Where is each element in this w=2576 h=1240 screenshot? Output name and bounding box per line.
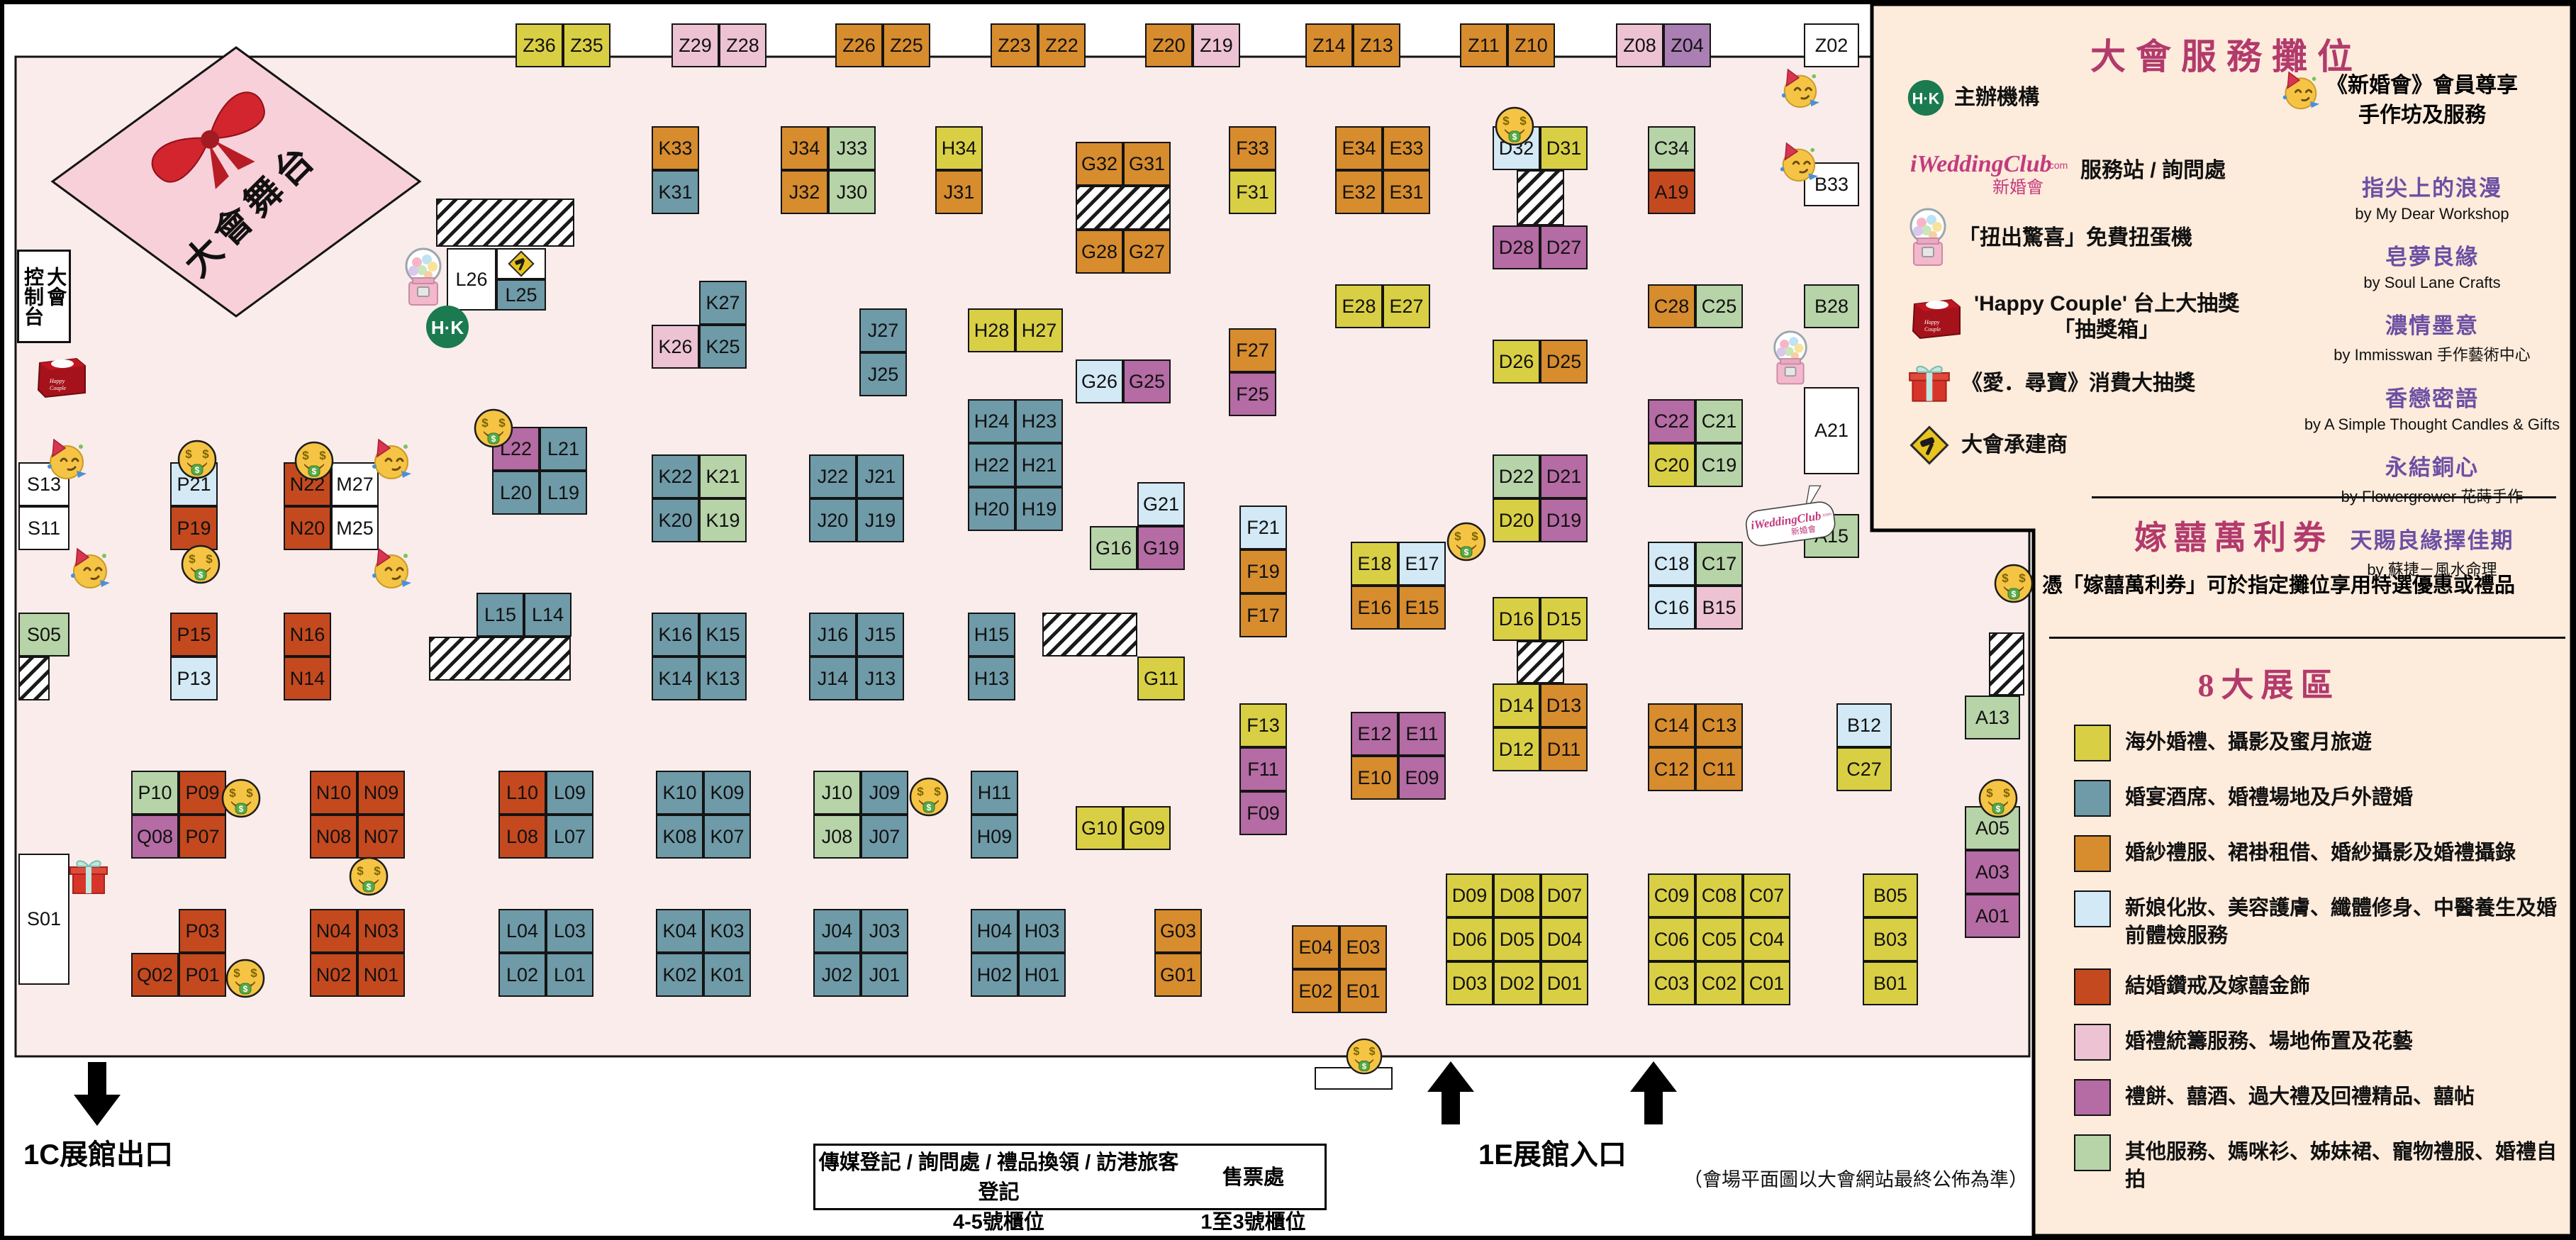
booth-label: E18	[1357, 554, 1391, 574]
svg-text:$: $	[491, 434, 496, 444]
booth-label: D27	[1546, 238, 1582, 257]
booth-B12: B12	[1836, 703, 1892, 747]
party-emoji-icon	[67, 547, 110, 590]
booth-D14: D14	[1493, 683, 1540, 727]
booth-label: H13	[974, 669, 1010, 688]
info-line1-left: 傳媒登記 / 詢問處 / 禮品換領 / 訪港旅客登記	[815, 1146, 1182, 1205]
workshop-by: by A Simple Thought Candles & Gifts	[2297, 415, 2567, 434]
svg-text:$: $	[1986, 786, 1993, 800]
booth-C21: C21	[1695, 399, 1743, 443]
zone-label: 新娘化妝、美容護膚、纖體修身、中醫養生及婚前體檢服務	[2125, 890, 2563, 950]
booth-label: N07	[364, 827, 399, 847]
hatched-area	[1989, 632, 2024, 696]
booth-N09: N09	[357, 771, 405, 815]
booth-label: K15	[706, 625, 740, 644]
booth-label: D03	[1452, 974, 1488, 993]
svg-text:$: $	[199, 570, 203, 580]
booth-label: E09	[1405, 769, 1439, 788]
booth-N10: N10	[310, 771, 357, 815]
booth-F17: F17	[1239, 593, 1287, 637]
money-emoji-icon: $ $ $	[1495, 106, 1534, 146]
hammer-icon	[505, 249, 537, 279]
booth-label: K03	[710, 922, 744, 941]
booth-label: Z29	[679, 36, 712, 55]
svg-text:$: $	[2012, 589, 2017, 599]
booth-label: P01	[185, 966, 219, 985]
booth-label: Z08	[1623, 36, 1656, 55]
booth-label: N02	[316, 966, 352, 985]
booth-label: N14	[290, 669, 325, 688]
booth-C03: C03	[1648, 961, 1695, 1005]
booth-label: H19	[1022, 500, 1057, 519]
booth-E17: E17	[1398, 542, 1446, 586]
booth-label: G01	[1160, 966, 1196, 985]
booth-H02: H02	[971, 953, 1018, 997]
workshop-by: by Immisswan 手作藝術中心	[2297, 342, 2567, 365]
booth-label: A21	[1814, 421, 1849, 440]
booth-C16: C16	[1648, 586, 1695, 630]
booth-label: B28	[1814, 297, 1849, 316]
booth-D08: D08	[1493, 873, 1541, 917]
booth-label: C12	[1654, 760, 1690, 779]
money-emoji-icon: $ $ $	[294, 441, 334, 481]
booth-C25: C25	[1695, 284, 1743, 328]
booth-F19: F19	[1239, 549, 1287, 593]
booth-label: L08	[506, 827, 538, 847]
gumball-icon	[1907, 204, 1948, 272]
booth-label: P19	[177, 519, 211, 538]
booth-label: K09	[710, 783, 744, 803]
booth-label: J02	[822, 966, 853, 985]
hammer-icon	[1907, 423, 1951, 467]
zone-color-swatch	[2074, 835, 2111, 872]
booth-label: D14	[1499, 696, 1534, 715]
booth-Z23: Z23	[991, 23, 1038, 67]
booth-Z10: Z10	[1507, 23, 1555, 67]
party-emoji-icon	[1778, 68, 1819, 109]
entrance-arrow-icon	[1427, 1061, 1677, 1124]
booth-label: Q02	[137, 966, 173, 985]
svg-text:$: $	[927, 803, 932, 812]
booth-D09: D09	[1446, 873, 1493, 917]
booth-label: G25	[1129, 372, 1165, 391]
booth-label: B01	[1873, 974, 1907, 993]
booth-label: J01	[869, 966, 901, 985]
booth-D31: D31	[1540, 126, 1588, 170]
booth-K22: K22	[652, 454, 699, 498]
booth-label: A03	[1975, 863, 2009, 882]
booth-label: E27	[1389, 297, 1423, 316]
workshop-name: 濃情墨意	[2297, 308, 2567, 340]
booth-label: M27	[336, 475, 374, 494]
booth-Z20: Z20	[1145, 23, 1193, 67]
booth-J08: J08	[813, 815, 861, 859]
booth-E04: E04	[1292, 925, 1339, 969]
booth-label: B12	[1847, 716, 1881, 735]
workshop-item: 濃情墨意 by Immisswan 手作藝術中心	[2297, 308, 2567, 365]
booth-C07: C07	[1743, 873, 1790, 917]
booth-label: Z36	[523, 36, 556, 55]
booth-label: N20	[290, 519, 325, 538]
booth-J19: J19	[857, 498, 904, 542]
booth-label: A01	[1975, 907, 2009, 926]
svg-text:$: $	[1512, 132, 1517, 142]
booth-F31: F31	[1229, 170, 1276, 214]
booth-J01: J01	[861, 953, 908, 997]
booth-label: C20	[1654, 456, 1690, 475]
svg-text:H·K: H·K	[431, 317, 464, 338]
svg-text:$: $	[1454, 530, 1461, 543]
money-emoji-icon: $ $ $	[1446, 522, 1486, 562]
booth-Q08: Q08	[131, 815, 179, 859]
money-emoji-icon: $ $ $	[474, 408, 513, 448]
booth-label: Z25	[890, 36, 923, 55]
booth-A21: A21	[1804, 387, 1859, 474]
booth-K13: K13	[699, 657, 747, 700]
booth-Z29: Z29	[671, 23, 719, 67]
booth-K07: K07	[703, 815, 751, 859]
svg-text:$: $	[319, 449, 326, 462]
booth-H11: H11	[971, 771, 1018, 815]
booth-label: J25	[868, 365, 899, 384]
booth-C22: C22	[1648, 399, 1695, 443]
booth-label: H28	[974, 321, 1010, 340]
booth-D01: D01	[1541, 961, 1588, 1005]
booth-H15: H15	[968, 613, 1015, 657]
booth-label: E11	[1405, 725, 1438, 744]
booth-Z28: Z28	[719, 23, 766, 67]
booth-label: H20	[974, 500, 1010, 519]
booth-label: L07	[554, 827, 586, 847]
booth-label: D28	[1499, 238, 1534, 257]
booth-label: L09	[554, 783, 586, 803]
booth-G27: G27	[1123, 230, 1171, 274]
booth-label: S05	[27, 625, 61, 644]
booth-J03: J03	[861, 909, 908, 953]
booth-label: E02	[1298, 982, 1332, 1001]
booth-F33: F33	[1229, 126, 1276, 170]
svg-text:Happy: Happy	[1924, 319, 1940, 325]
booth-label: P13	[177, 669, 211, 688]
booth-label: N09	[364, 783, 399, 803]
booth-label: Z19	[1200, 36, 1233, 55]
booth-J22: J22	[809, 454, 857, 498]
booth-D15: D15	[1540, 597, 1588, 641]
booth-label: G27	[1129, 242, 1165, 262]
booth-J32: J32	[781, 170, 828, 214]
booth-label: K04	[662, 922, 696, 941]
workshop-by: by Flowergrower 花蒔手作	[2297, 484, 2567, 507]
gumball-icon	[1771, 329, 1810, 389]
booth-F13: F13	[1239, 703, 1287, 747]
money-emoji-icon: $ $ $	[181, 544, 221, 584]
party-emoji-icon	[369, 438, 411, 481]
booth-D04: D04	[1541, 917, 1588, 961]
svg-text:$: $	[246, 786, 253, 800]
bubble-icon: iWeddingClub .com 新婚會	[1722, 484, 1860, 544]
svg-text:$: $	[1353, 1046, 1359, 1058]
zone-legend-item: 婚紗禮服、裙褂租借、婚紗攝影及婚禮攝錄	[2074, 835, 2563, 872]
booth-label: K26	[658, 337, 692, 357]
booth-label: K19	[706, 511, 740, 530]
service-label: 「扭出驚喜」免費扭蛋機	[1958, 225, 2192, 252]
booth-label: L14	[532, 605, 564, 625]
svg-text:$: $	[202, 447, 209, 461]
zone-color-swatch	[2074, 890, 2111, 927]
booth-label: D01	[1547, 974, 1583, 993]
booth-D13: D13	[1540, 683, 1588, 727]
booth-N14: N14	[284, 657, 331, 700]
booth-label: S11	[28, 519, 60, 538]
booth-P10: P10	[131, 771, 179, 815]
booth-label: Z20	[1152, 36, 1186, 55]
booth-C19: C19	[1695, 443, 1743, 487]
service-label: 《愛．尋寶》消費大抽獎	[1961, 370, 2195, 397]
booth-Z35: Z35	[563, 23, 610, 67]
gift-icon	[1907, 363, 1951, 404]
exit-arrow-icon	[74, 1062, 121, 1126]
booth-Z22: Z22	[1038, 23, 1086, 67]
workshop-by: by Soul Lane Crafts	[2297, 274, 2567, 292]
booth-label: D19	[1546, 511, 1582, 530]
workshop-item: 指尖上的浪漫 by My Dear Workshop	[2297, 170, 2567, 223]
booth-Z36: Z36	[515, 23, 563, 67]
gift-icon	[68, 858, 109, 896]
booth-label: A05	[1975, 819, 2009, 838]
booth-label: D06	[1452, 930, 1488, 949]
booth-E28: E28	[1335, 284, 1383, 328]
svg-text:$: $	[1996, 804, 2001, 814]
booth-label: J21	[865, 467, 896, 486]
svg-text:$: $	[1520, 114, 1527, 128]
booth-L19: L19	[540, 471, 587, 515]
booth-N04: N04	[310, 909, 357, 953]
control-room-box: 大會 控制台	[17, 250, 71, 343]
booth-H13: H13	[968, 657, 1015, 700]
coupon-description: 憑「嫁囍萬利券」可於指定攤位享用特選優惠或禮品	[2042, 569, 2515, 598]
booth-H21: H21	[1015, 443, 1063, 487]
hatched-area	[429, 637, 571, 681]
zone-color-swatch	[2074, 1079, 2111, 1116]
booth-C14: C14	[1648, 703, 1695, 747]
coupon-title: 嫁囍萬利券	[1950, 512, 2517, 559]
booth-C06: C06	[1648, 917, 1695, 961]
booth-N16: N16	[284, 613, 331, 657]
booth-label: J16	[818, 625, 849, 644]
booth-label: Z10	[1515, 36, 1548, 55]
booth-label: C27	[1846, 760, 1882, 779]
booth-label: L04	[506, 922, 538, 941]
booth-F25: F25	[1229, 372, 1276, 416]
svg-text:$: $	[2002, 571, 2009, 585]
svg-text:$: $	[1471, 530, 1478, 543]
booth-label: K08	[662, 827, 696, 847]
booth-B03: B03	[1863, 917, 1918, 961]
booth-label: C22	[1654, 412, 1690, 431]
booth-label: Z13	[1360, 36, 1393, 55]
booth-J04: J04	[813, 909, 861, 953]
floor-plan-page: 大會舞台 大會 控制台 Z36Z35Z29Z28Z26Z25Z23Z22Z20Z…	[0, 0, 2576, 1240]
svg-text:$: $	[934, 785, 941, 798]
booth-label: J27	[868, 321, 899, 340]
booth-label: D12	[1499, 740, 1534, 759]
booth-label: F27	[1236, 341, 1269, 360]
booth-D20: D20	[1493, 498, 1540, 542]
booth-E33: E33	[1383, 126, 1430, 170]
booth-label: L02	[506, 966, 538, 985]
booth-label: G03	[1160, 922, 1196, 941]
booth-label: P03	[185, 922, 219, 941]
booth-label: K16	[658, 625, 692, 644]
booth-K19: K19	[699, 498, 747, 542]
booth-L26: L26	[447, 248, 496, 311]
booth-K27: K27	[699, 281, 747, 325]
booth-H28: H28	[968, 308, 1015, 352]
booth-C02: C02	[1695, 961, 1743, 1005]
booth-label: J14	[818, 669, 849, 688]
hatched-area	[1042, 613, 1137, 657]
booth-label: J03	[869, 922, 901, 941]
booth-P19: P19	[170, 506, 218, 550]
booth-label: L21	[547, 440, 579, 459]
money-emoji-icon: $ $ $	[1994, 564, 2034, 603]
svg-text:$: $	[1362, 1063, 1367, 1071]
booth-label: Z04	[1671, 36, 1704, 55]
booth-label: B33	[1814, 175, 1849, 194]
iwc-icon: iWeddingClub .com 新婚會	[1907, 139, 2070, 203]
booth-J02: J02	[813, 953, 861, 997]
booth-L01: L01	[546, 953, 593, 997]
booth-L25: L25	[496, 279, 546, 311]
booth-label: D26	[1499, 352, 1534, 372]
booth-label: D08	[1500, 886, 1535, 905]
booth-label: M25	[336, 519, 374, 538]
booth-label: D02	[1500, 974, 1535, 993]
booth-D28: D28	[1493, 225, 1540, 269]
svg-text:Happy: Happy	[49, 378, 65, 384]
svg-text:$: $	[233, 966, 240, 980]
booth-label: L10	[506, 783, 538, 803]
booth-label: G19	[1143, 539, 1179, 558]
booth-label: C34	[1654, 139, 1690, 158]
booth-L10: L10	[498, 771, 546, 815]
hatched-area	[1517, 641, 1564, 683]
svg-text:$: $	[243, 984, 248, 994]
booth-label: J09	[869, 783, 901, 803]
booth-E01: E01	[1339, 969, 1387, 1013]
booth-L15: L15	[476, 593, 524, 637]
svg-text:.com: .com	[2046, 160, 2068, 171]
booth-G28: G28	[1076, 230, 1123, 274]
booth-label: K01	[710, 966, 744, 985]
booth-label: J22	[818, 467, 849, 486]
member-line2: 手作坊及服務	[2326, 101, 2518, 130]
booth-K14: K14	[652, 657, 699, 700]
booth-H24: H24	[968, 399, 1015, 443]
booth-label: G16	[1095, 539, 1132, 558]
booth-label: J07	[869, 827, 901, 847]
panel-divider-1	[2092, 496, 2556, 498]
booth-label: K02	[662, 966, 696, 985]
booth-label: H24	[974, 412, 1010, 431]
booth-label: E10	[1357, 769, 1391, 788]
zone-legend-item: 婚宴酒席、婚禮場地及戶外證婚	[2074, 780, 2563, 817]
svg-text:iWeddingClub: iWeddingClub	[1910, 151, 2052, 177]
booth-J33: J33	[828, 126, 876, 170]
booth-label: H03	[1025, 922, 1060, 941]
booth-label: C05	[1702, 930, 1737, 949]
zone-label: 其他服務、媽咪衫、姊妹裙、寵物禮服、婚禮自拍	[2125, 1134, 2563, 1194]
party-emoji-icon	[44, 438, 87, 481]
booth-L09: L09	[546, 771, 593, 815]
booth-Q02: Q02	[131, 953, 179, 997]
booth-P15: P15	[170, 613, 218, 657]
booth-J27: J27	[859, 308, 907, 352]
booth-label: K21	[706, 467, 740, 486]
booth-label: F09	[1247, 804, 1280, 823]
booth-label: N04	[316, 922, 352, 941]
svg-text:$: $	[481, 416, 489, 430]
booth-D03: D03	[1446, 961, 1493, 1005]
booth-P03: P03	[179, 909, 226, 953]
booth-D22: D22	[1493, 454, 1540, 498]
booth-label: Z22	[1045, 36, 1078, 55]
booth-B01: B01	[1863, 961, 1918, 1005]
booth-L21: L21	[540, 427, 587, 471]
info-line1-right: 售票處	[1182, 1161, 1325, 1190]
booth-label: L03	[554, 922, 586, 941]
zone-label: 婚宴酒席、婚禮場地及戶外證婚	[2125, 780, 2413, 812]
booth-label: H02	[977, 966, 1013, 985]
booth-label: E34	[1342, 139, 1376, 158]
workshop-name: 香戀密語	[2297, 381, 2567, 413]
booth-C12: C12	[1648, 747, 1695, 791]
disclaimer-text: （會場平面圖以大會網站最終公佈為準）	[1588, 1164, 2028, 1192]
party-emoji-icon	[2280, 71, 2319, 111]
booth-label: K33	[658, 139, 692, 158]
svg-text:$: $	[2019, 571, 2026, 585]
booth-label: D04	[1547, 930, 1583, 949]
booth-L20: L20	[492, 471, 540, 515]
zone-label: 海外婚禮、攝影及蜜月旅遊	[2125, 725, 2372, 756]
booth-J25: J25	[859, 352, 907, 396]
zone-color-swatch	[2074, 725, 2111, 761]
booth-K26: K26	[652, 325, 699, 369]
booth-H34: H34	[935, 126, 983, 170]
booth-label: C18	[1654, 554, 1690, 574]
booth-label: P10	[138, 783, 172, 803]
booth-label: K14	[658, 669, 692, 688]
booth-B28: B28	[1804, 284, 1859, 328]
booth-label: A13	[1975, 708, 2009, 727]
booth-N08: N08	[310, 815, 357, 859]
booth-label: J34	[789, 139, 820, 158]
booth-C20: C20	[1648, 443, 1695, 487]
booth-G01: G01	[1154, 953, 1202, 997]
booth-label: L26	[455, 270, 487, 289]
booth-D05: D05	[1493, 917, 1541, 961]
booth-label: E28	[1342, 297, 1376, 316]
booth-label: Z23	[998, 36, 1031, 55]
zone-legend-item: 結婚鑽戒及嫁囍金飾	[2074, 968, 2563, 1005]
money-emoji-icon: $ $ $	[221, 778, 261, 818]
booth-K33: K33	[652, 126, 699, 170]
booth-label: C17	[1702, 554, 1737, 574]
booth-E03: E03	[1339, 925, 1387, 969]
booth-K10: K10	[656, 771, 703, 815]
booth-E09: E09	[1398, 756, 1446, 800]
booth-label: K25	[706, 337, 740, 357]
